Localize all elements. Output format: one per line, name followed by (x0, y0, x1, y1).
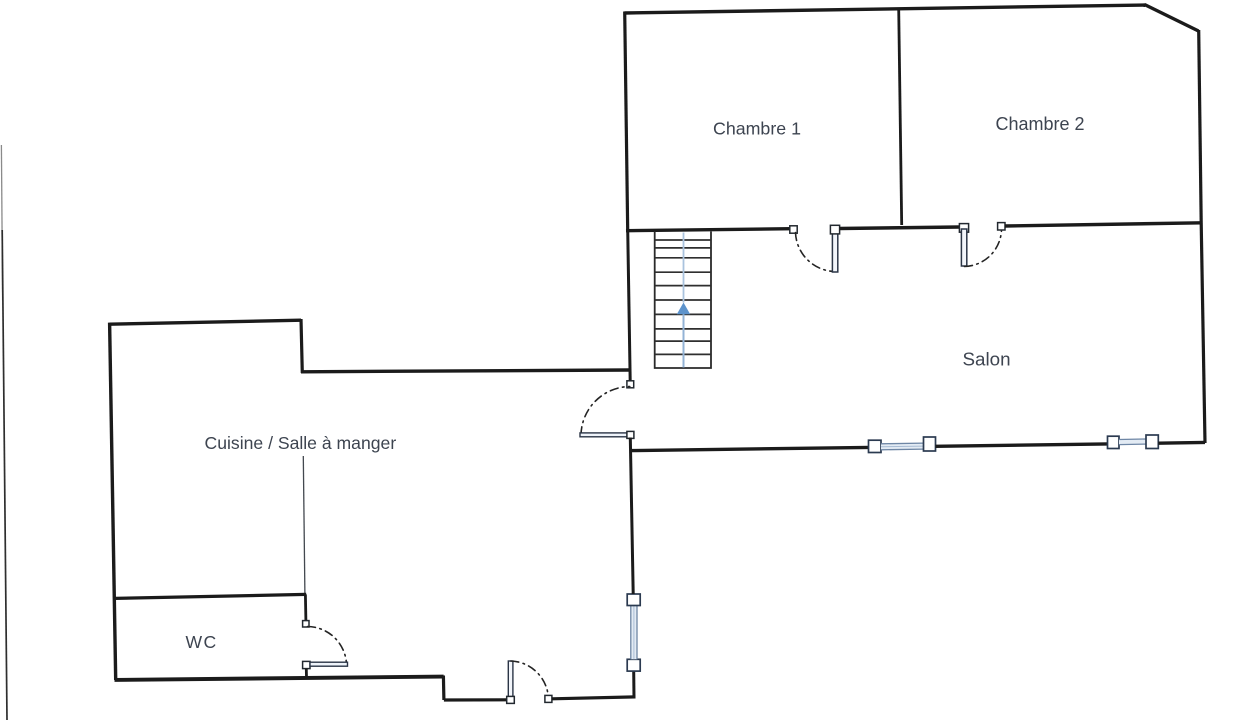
svg-text:Salon: Salon (963, 349, 1011, 370)
svg-text:Chambre 2: Chambre 2 (996, 114, 1085, 134)
svg-text:WC: WC (186, 632, 218, 652)
svg-text:Cuisine / Salle à manger: Cuisine / Salle à manger (205, 433, 397, 453)
svg-text:Chambre 1: Chambre 1 (713, 119, 801, 139)
